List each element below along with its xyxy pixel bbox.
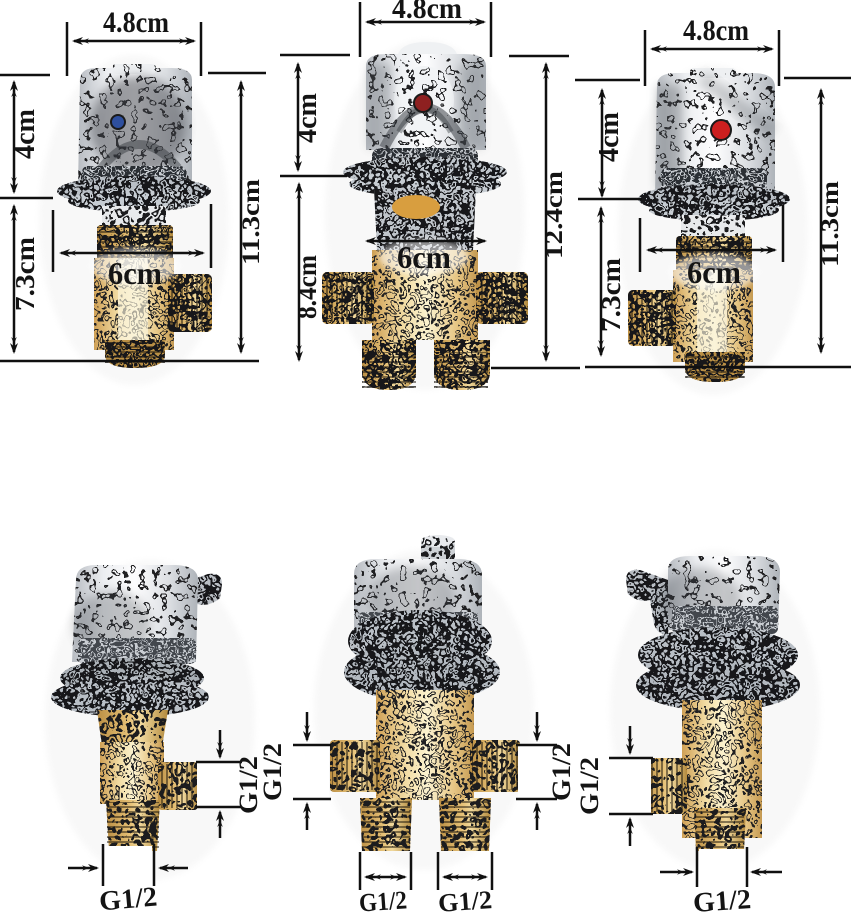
svg-text:6cm: 6cm bbox=[397, 239, 451, 275]
svg-text:G1/2: G1/2 bbox=[547, 743, 576, 801]
svg-text:G1/2: G1/2 bbox=[358, 885, 408, 917]
svg-text:G1/2: G1/2 bbox=[437, 885, 493, 918]
svg-text:G1/2: G1/2 bbox=[258, 743, 287, 801]
svg-text:4cm: 4cm bbox=[594, 112, 625, 162]
svg-text:G1/2: G1/2 bbox=[98, 882, 158, 918]
svg-text:4cm: 4cm bbox=[292, 93, 323, 143]
svg-text:4.8cm: 4.8cm bbox=[683, 14, 749, 47]
svg-text:6cm: 6cm bbox=[108, 255, 162, 291]
svg-text:8.4cm: 8.4cm bbox=[292, 255, 322, 319]
svg-text:6cm: 6cm bbox=[687, 254, 741, 290]
svg-text:4.8cm: 4.8cm bbox=[103, 6, 169, 39]
svg-text:G1/2: G1/2 bbox=[575, 757, 604, 815]
svg-text:G1/2: G1/2 bbox=[692, 884, 752, 919]
